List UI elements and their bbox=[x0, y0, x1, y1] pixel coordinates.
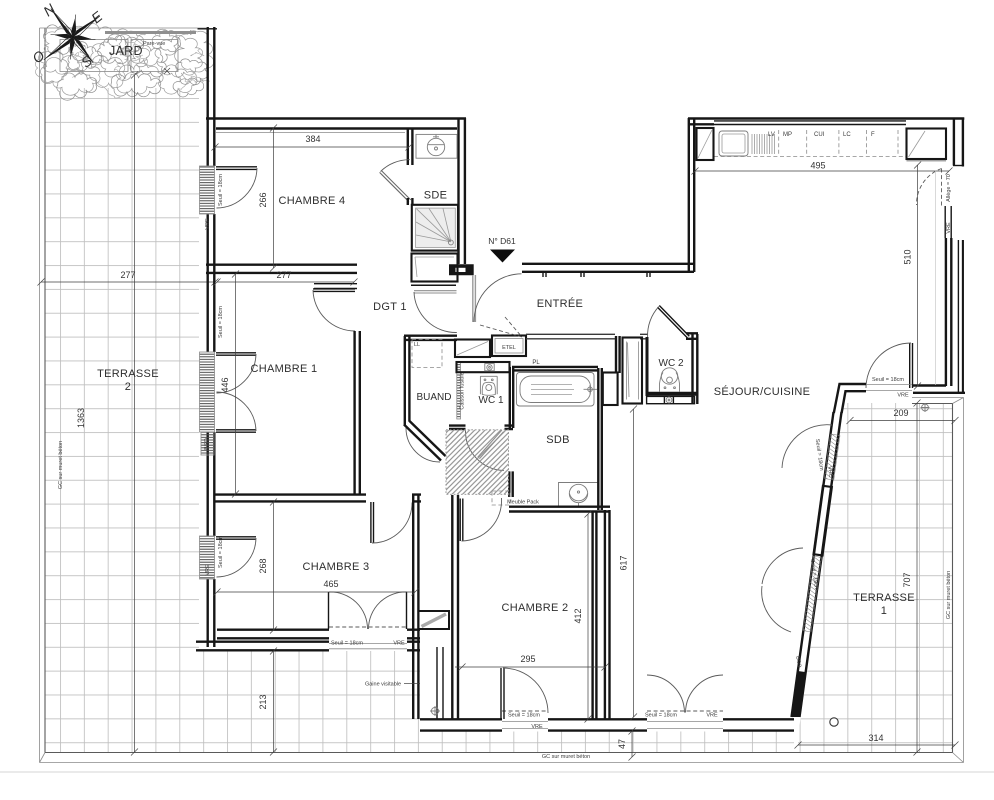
svg-text:1: 1 bbox=[881, 605, 887, 617]
svg-text:ETEL: ETEL bbox=[502, 345, 516, 351]
svg-text:Seuil = 18cm: Seuil = 18cm bbox=[872, 377, 904, 383]
svg-text:SDE: SDE bbox=[424, 190, 448, 202]
svg-text:LL: LL bbox=[414, 342, 420, 348]
svg-text:Seuil = 18cm: Seuil = 18cm bbox=[508, 713, 540, 719]
svg-text:VRE: VRE bbox=[897, 393, 909, 399]
svg-text:1363: 1363 bbox=[76, 408, 86, 428]
svg-text:GC sur muret béton: GC sur muret béton bbox=[946, 571, 952, 619]
svg-text:266: 266 bbox=[258, 192, 268, 207]
svg-text:617: 617 bbox=[619, 555, 629, 570]
svg-text:BUAND: BUAND bbox=[416, 392, 451, 403]
svg-text:MP: MP bbox=[783, 132, 792, 138]
svg-text:PL: PL bbox=[532, 360, 540, 366]
svg-text:SÉJOUR/CUISINE: SÉJOUR/CUISINE bbox=[714, 385, 811, 398]
svg-text:Seuil = 18cm: Seuil = 18cm bbox=[218, 536, 224, 568]
svg-text:446: 446 bbox=[220, 377, 230, 392]
svg-text:GC sur muret béton: GC sur muret béton bbox=[58, 441, 64, 489]
svg-text:N° D61: N° D61 bbox=[488, 236, 516, 246]
svg-text:213: 213 bbox=[258, 694, 268, 709]
svg-text:Allège = 70: Allège = 70 bbox=[946, 174, 952, 202]
svg-text:ENTRÉE: ENTRÉE bbox=[537, 297, 583, 310]
svg-text:F: F bbox=[871, 132, 875, 138]
svg-text:209: 209 bbox=[893, 408, 908, 418]
svg-text:VRE: VRE bbox=[706, 713, 718, 719]
svg-text:WC 2: WC 2 bbox=[659, 358, 684, 369]
svg-text:Seuil = 18cm: Seuil = 18cm bbox=[331, 641, 363, 647]
svg-text:Pare-vue: Pare-vue bbox=[143, 41, 165, 47]
svg-text:Seuil = 18cm: Seuil = 18cm bbox=[218, 174, 224, 206]
svg-text:GC sur muret béton: GC sur muret béton bbox=[542, 754, 590, 760]
svg-text:VRE: VRE bbox=[393, 641, 405, 647]
svg-text:707: 707 bbox=[902, 572, 912, 587]
svg-text:CHAMBRE 3: CHAMBRE 3 bbox=[303, 561, 370, 573]
svg-text:JARD: JARD bbox=[109, 44, 143, 58]
svg-text:CUI: CUI bbox=[814, 132, 825, 138]
svg-text:510: 510 bbox=[903, 249, 913, 264]
svg-text:Seuil = 18cm: Seuil = 18cm bbox=[645, 713, 677, 719]
svg-text:Seuil = 18cm: Seuil = 18cm bbox=[218, 306, 224, 338]
svg-text:Meuble Pack: Meuble Pack bbox=[507, 500, 539, 506]
svg-text:WC 1: WC 1 bbox=[479, 395, 504, 406]
svg-text:277: 277 bbox=[276, 270, 291, 280]
svg-text:295: 295 bbox=[520, 654, 535, 664]
svg-text:314: 314 bbox=[868, 733, 883, 743]
svg-text:412: 412 bbox=[573, 608, 583, 623]
svg-text:VRE: VRE bbox=[205, 564, 211, 576]
svg-text:465: 465 bbox=[323, 579, 338, 589]
svg-text:47: 47 bbox=[617, 739, 627, 749]
svg-text:LC: LC bbox=[843, 132, 851, 138]
svg-text:277: 277 bbox=[120, 270, 135, 280]
svg-text:DGT 1: DGT 1 bbox=[373, 301, 407, 313]
svg-text:VRE: VRE bbox=[205, 218, 211, 230]
svg-text:CHAMBRE 1: CHAMBRE 1 bbox=[251, 363, 318, 375]
svg-text:495: 495 bbox=[810, 161, 825, 171]
svg-text:BSO: BSO bbox=[204, 437, 210, 449]
svg-text:Gaine visitable: Gaine visitable bbox=[365, 682, 401, 688]
svg-text:TERRASSE: TERRASSE bbox=[97, 368, 159, 380]
svg-text:CHAMBRE 2: CHAMBRE 2 bbox=[502, 602, 569, 614]
svg-text:268: 268 bbox=[258, 558, 268, 573]
svg-text:2: 2 bbox=[125, 381, 131, 393]
svg-text:VRE: VRE bbox=[531, 724, 543, 730]
svg-text:TERRASSE: TERRASSE bbox=[853, 592, 915, 604]
svg-text:VRE: VRE bbox=[946, 222, 952, 234]
svg-text:Caisson fusible: Caisson fusible bbox=[460, 372, 466, 409]
svg-text:CHAMBRE 4: CHAMBRE 4 bbox=[279, 195, 346, 207]
svg-text:LV: LV bbox=[768, 132, 775, 138]
svg-text:384: 384 bbox=[305, 134, 320, 144]
svg-text:SDB: SDB bbox=[546, 434, 570, 446]
